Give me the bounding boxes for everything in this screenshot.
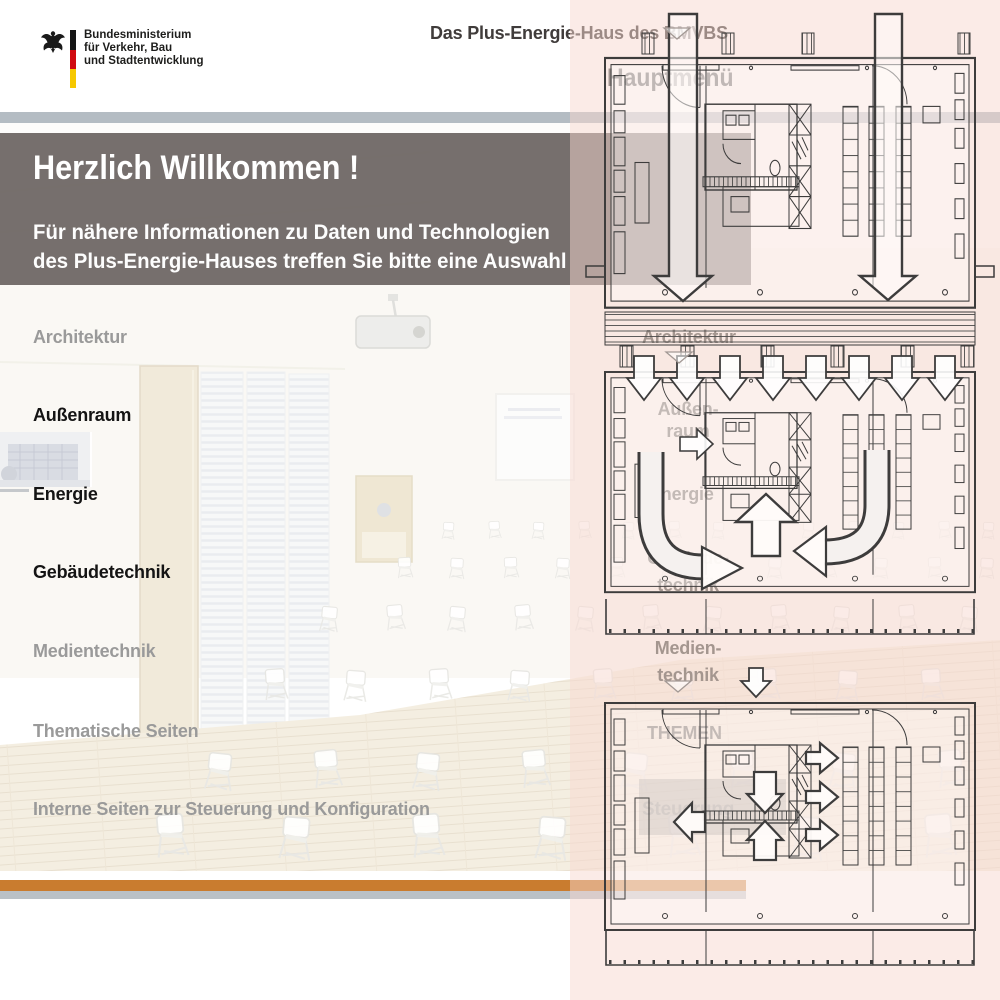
overlay-panel <box>570 0 1000 1000</box>
overlay-item-steuerung[interactable]: Steuerung <box>642 799 734 821</box>
overlay-item-aussenraum[interactable]: Außen- raum <box>628 398 748 442</box>
overlay-item-line: Außen- <box>628 398 748 420</box>
ministry-name: Bundesministerium für Verkehr, Bau und S… <box>84 29 203 68</box>
menu-item-gebaeudetechnik[interactable]: Gebäudetechnik <box>33 562 170 583</box>
overlay-item-line: Medien- <box>628 635 748 662</box>
welcome-heading: Herzlich Willkommen ! <box>33 149 359 188</box>
welcome-intro-line: Für nähere Informationen zu Daten und Te… <box>33 218 567 247</box>
overlay-item-gebaeudetechnik[interactable]: Gebäude- technik <box>628 545 748 599</box>
thumbnail-underline <box>0 489 29 492</box>
welcome-intro-line: des Plus-Energie-Hauses treffen Sie bitt… <box>33 247 567 276</box>
welcome-intro: Für nähere Informationen zu Daten und Te… <box>33 218 567 276</box>
menu-item-aussenraum[interactable]: Außenraum <box>33 405 131 426</box>
overlay-item-energie[interactable]: Energie <box>649 484 714 505</box>
german-federal-eagle-icon <box>40 28 66 54</box>
menu-item-architektur[interactable]: Architektur <box>33 327 127 348</box>
overlay-item-architektur[interactable]: Architektur <box>642 327 736 348</box>
overlay-item-medientechnik[interactable]: Medien- technik <box>628 635 748 689</box>
flag-stripe-icon <box>70 30 76 88</box>
overlay-item-line: Gebäude- <box>628 545 748 572</box>
overlay-item-themen[interactable]: THEMEN <box>647 723 722 744</box>
ministry-line: für Verkehr, Bau <box>84 42 203 55</box>
ministry-line: Bundesministerium <box>84 29 203 42</box>
overlay-item-line: technik <box>628 572 748 599</box>
menu-item-interne-seiten[interactable]: Interne Seiten zur Steuerung und Konfigu… <box>33 799 430 820</box>
kiosk-page: Bundesministerium für Verkehr, Bau und S… <box>0 0 1000 1000</box>
menu-item-energie[interactable]: Energie <box>33 484 98 505</box>
building-thumbnail <box>0 432 92 487</box>
ministry-line: und Stadtentwicklung <box>84 55 203 68</box>
overlay-item-line: technik <box>628 662 748 689</box>
overlay-item-line: raum <box>628 420 748 442</box>
menu-item-medientechnik[interactable]: Medientechnik <box>33 641 155 662</box>
overlay-heading: Hauptmenü <box>607 64 734 93</box>
menu-item-thematische-seiten[interactable]: Thematische Seiten <box>33 721 198 742</box>
building-photo-icon <box>0 432 90 487</box>
